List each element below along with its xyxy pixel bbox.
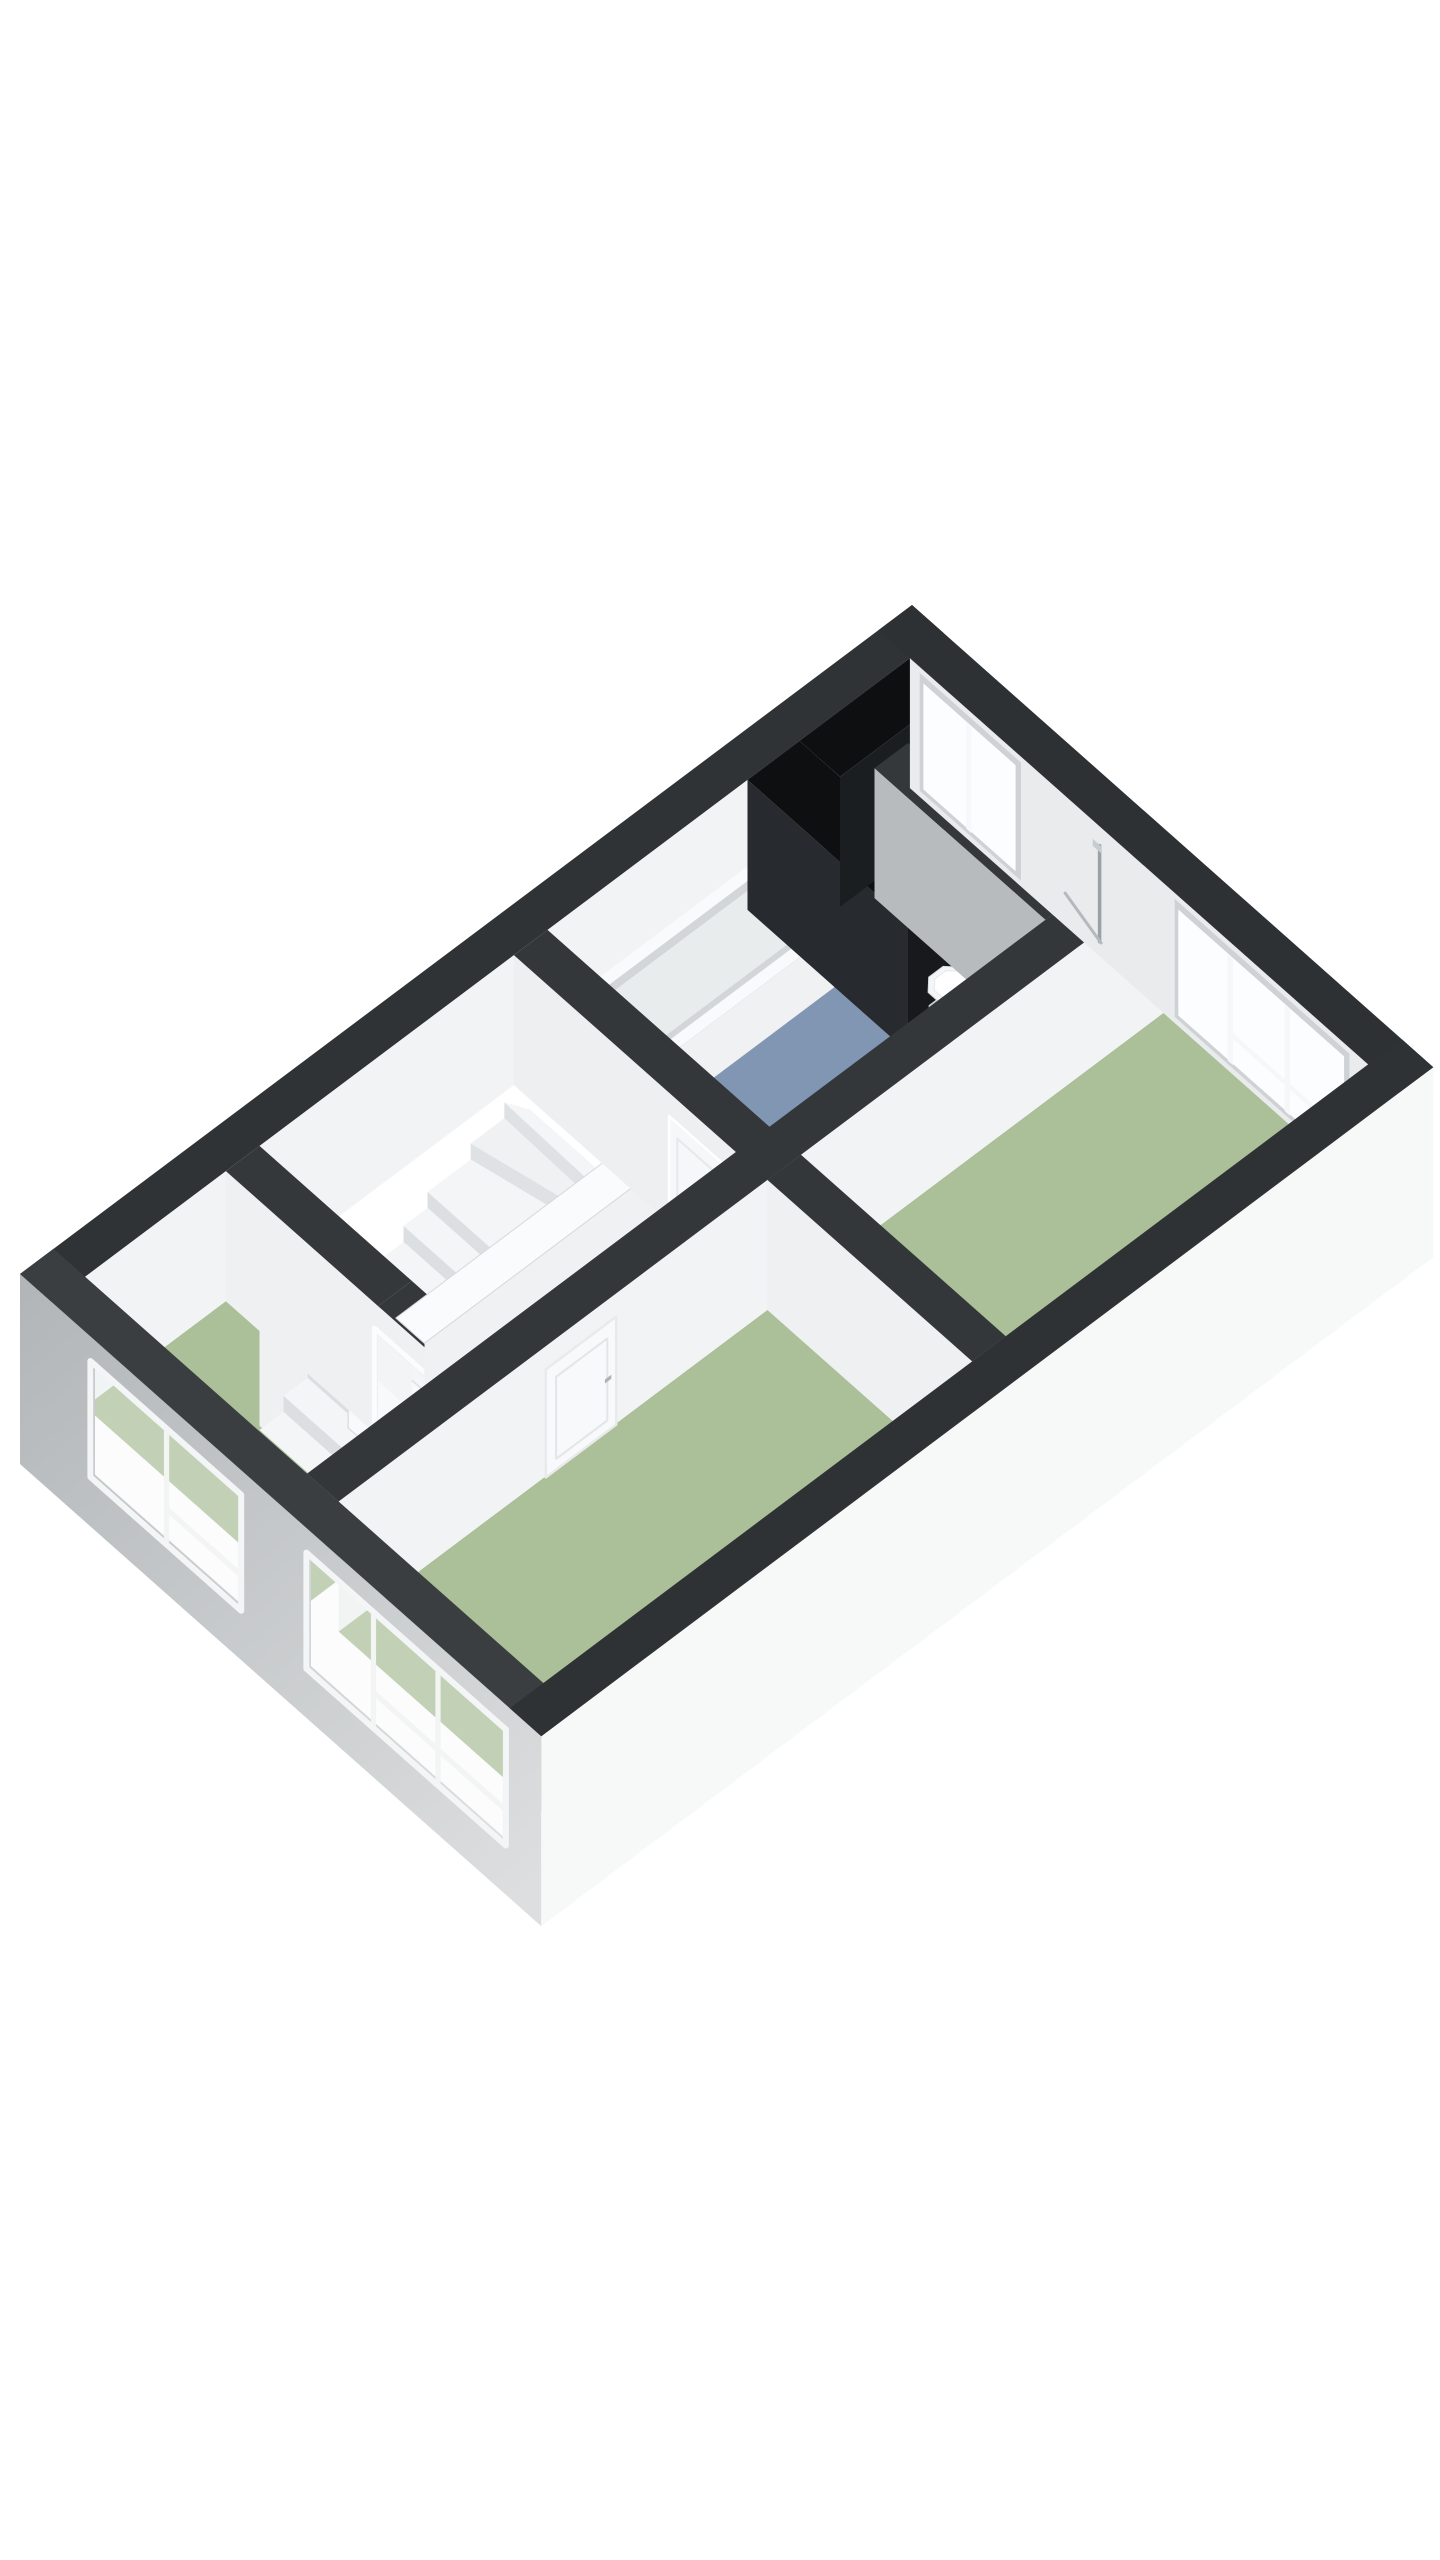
floorplan-3d-render bbox=[0, 0, 1440, 2560]
floorplan-3d-view bbox=[0, 0, 1440, 2560]
right-bedroom-window-mullion bbox=[1228, 955, 1233, 1066]
right-bedroom-window-mullion bbox=[1285, 1005, 1290, 1116]
bathroom-window-mullion bbox=[966, 723, 971, 834]
scene-root bbox=[20, 605, 1433, 1926]
